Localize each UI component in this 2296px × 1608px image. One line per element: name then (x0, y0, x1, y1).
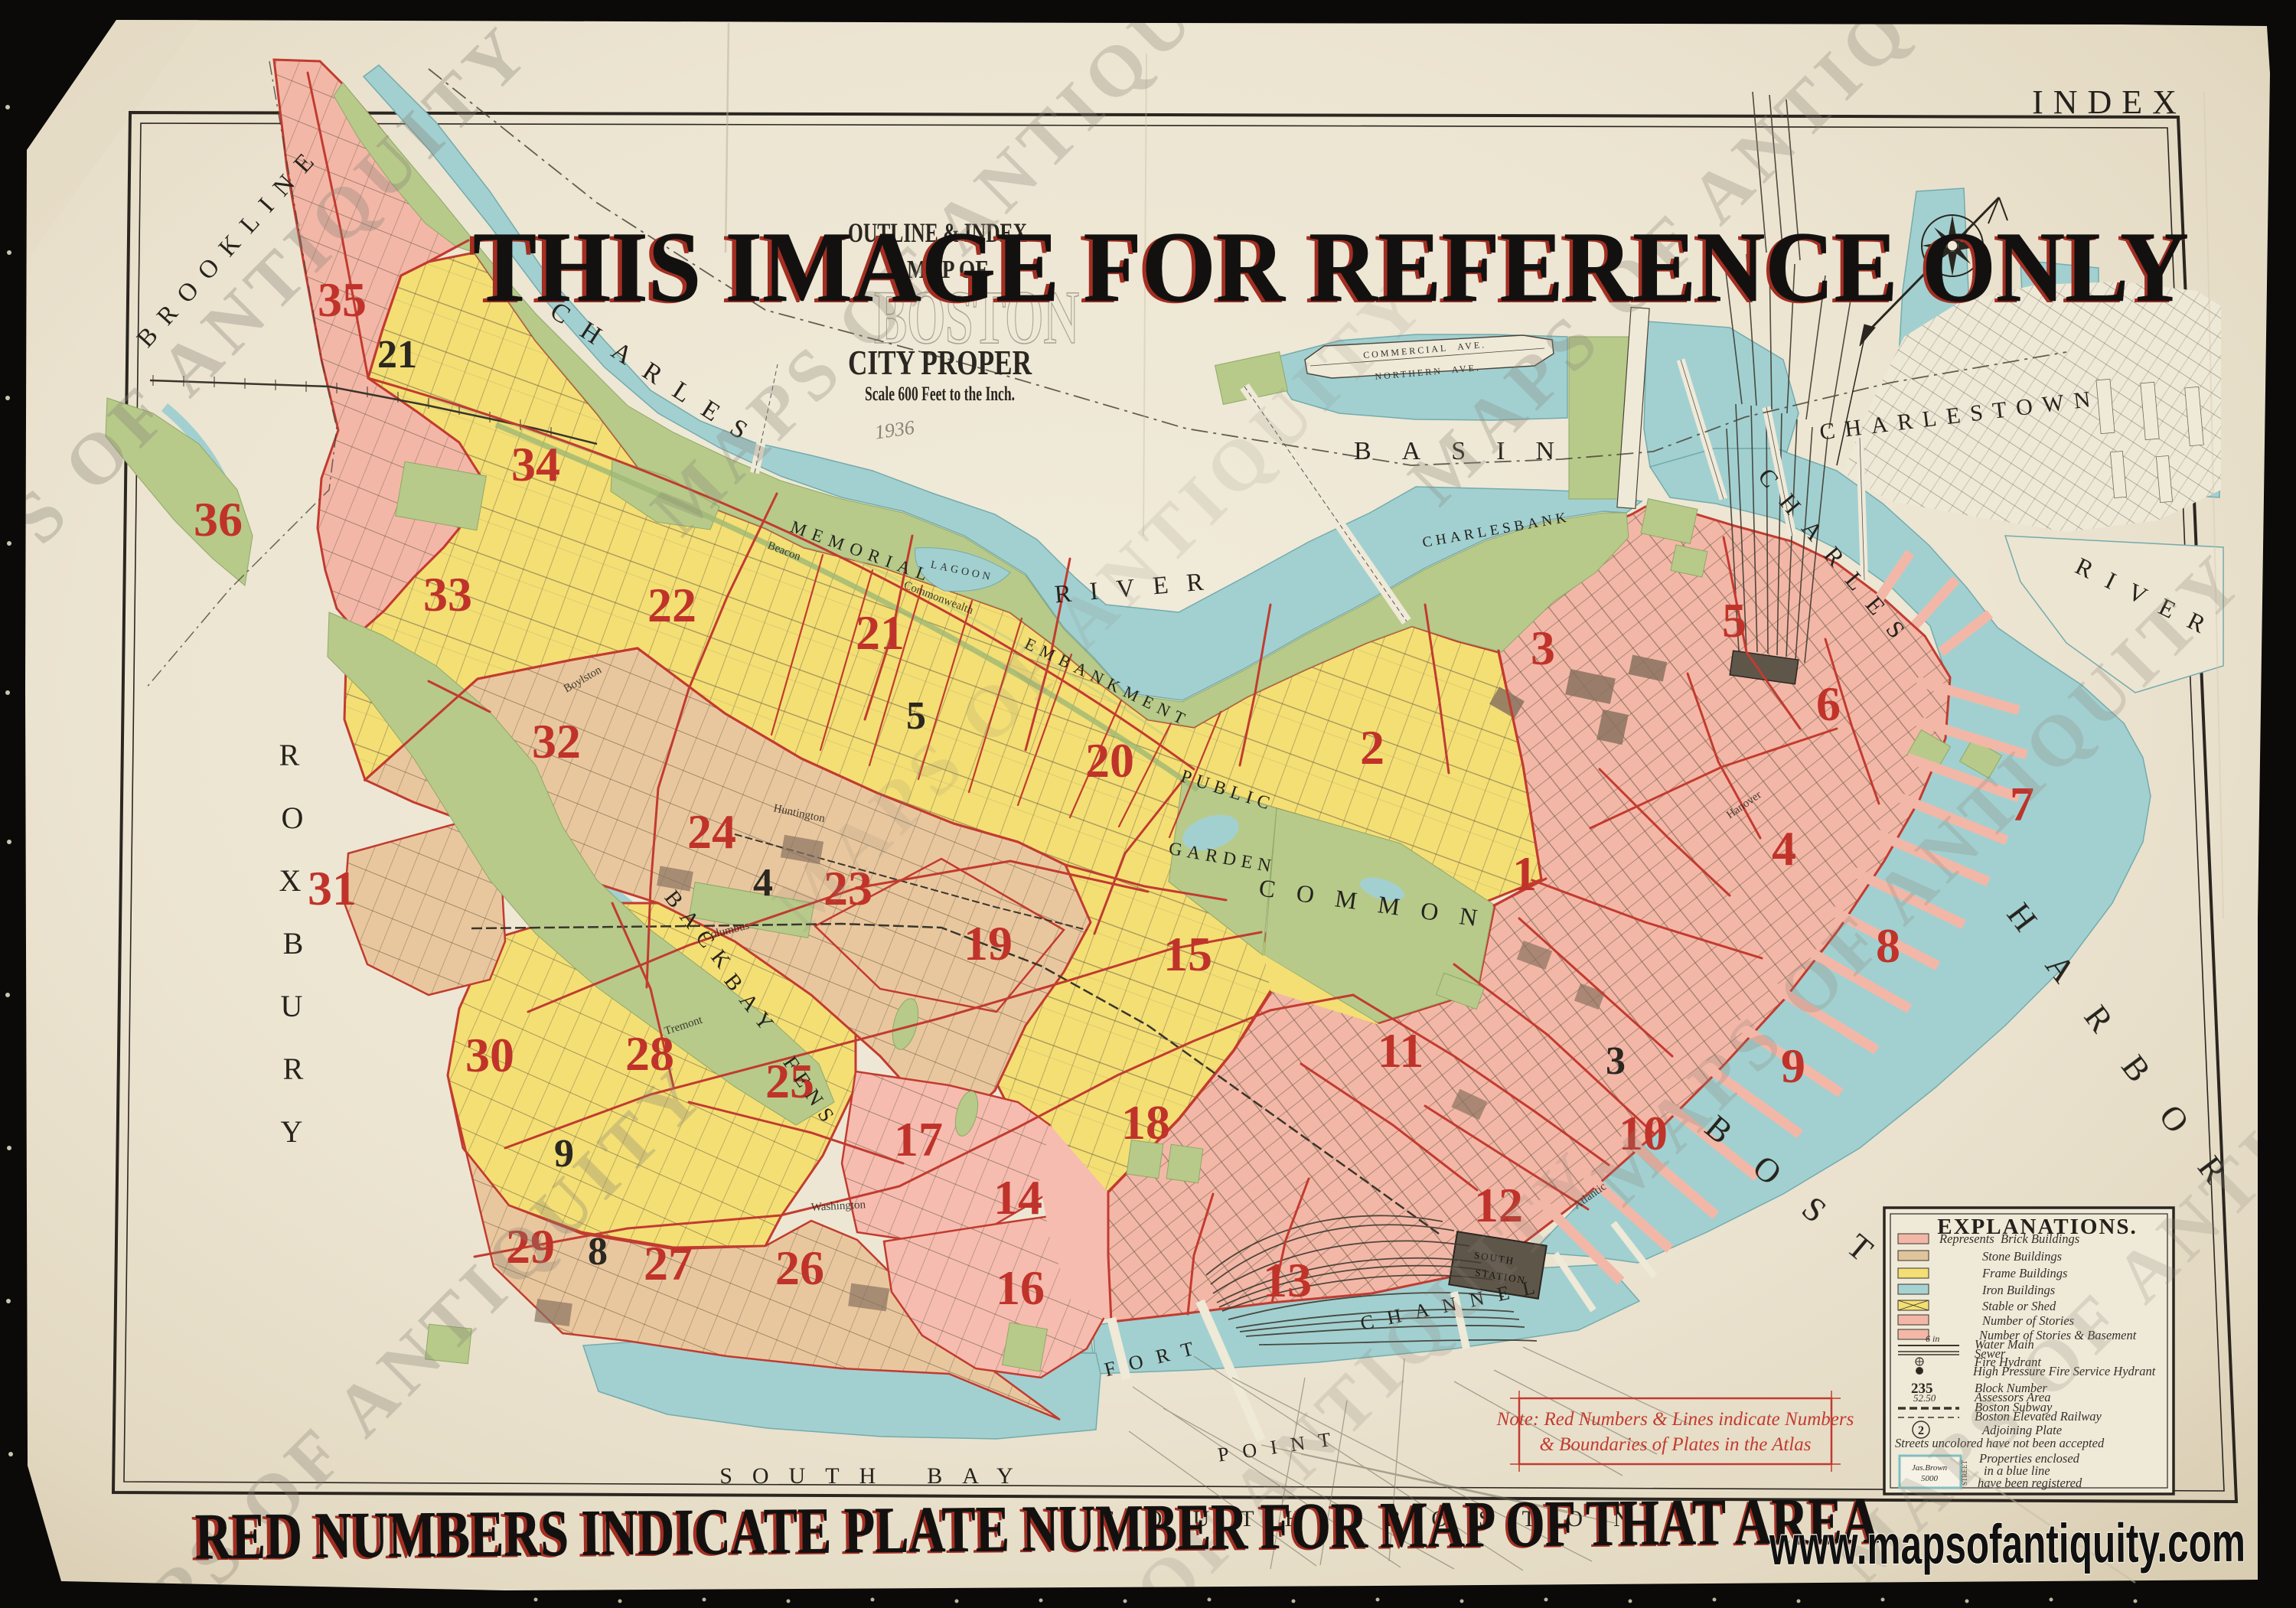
svg-text:17: 17 (894, 1112, 943, 1166)
svg-text:Frame Buildings: Frame Buildings (1981, 1266, 2067, 1280)
svg-text:2: 2 (1918, 1424, 1924, 1437)
svg-text:Scale 600 Feet to the Inch.: Scale 600 Feet to the Inch. (865, 383, 1015, 405)
svg-text:U: U (281, 989, 303, 1023)
svg-text:Stable or Shed: Stable or Shed (1982, 1299, 2056, 1313)
svg-text:30: 30 (465, 1028, 514, 1082)
svg-text:36: 36 (194, 492, 243, 546)
svg-text:19: 19 (964, 916, 1013, 970)
svg-text:33: 33 (423, 567, 472, 621)
svg-text:3: 3 (1531, 621, 1555, 675)
svg-text:4: 4 (1772, 821, 1796, 876)
svg-text:6 in: 6 in (1926, 1333, 1939, 1344)
svg-text:SOUTH BAY: SOUTH BAY (719, 1463, 1033, 1489)
svg-text:2: 2 (1360, 720, 1384, 775)
svg-text:52.50: 52.50 (1913, 1392, 1936, 1404)
svg-text:INDEX: INDEX (2032, 83, 2187, 121)
svg-text:www.mapsofantiquity.com: www.mapsofantiquity.com (1769, 1512, 2245, 1577)
svg-text:24: 24 (687, 804, 736, 859)
svg-text:11: 11 (1378, 1023, 1424, 1078)
svg-text:Represents Brick Buildings: Represents Brick Buildings (1939, 1231, 2079, 1246)
svg-text:B: B (283, 926, 304, 961)
svg-text:13: 13 (1263, 1253, 1312, 1307)
svg-text:15: 15 (1163, 927, 1212, 981)
svg-text:O: O (282, 801, 304, 835)
svg-text:Stone Buildings: Stone Buildings (1982, 1249, 2062, 1264)
svg-text:R: R (283, 1052, 304, 1086)
svg-text:3: 3 (1606, 1039, 1626, 1083)
svg-text:THIS IMAGE FOR REFERENCE ONLY: THIS IMAGE FOR REFERENCE ONLY (473, 210, 2189, 323)
svg-text:22: 22 (647, 578, 696, 632)
svg-text:34: 34 (511, 437, 560, 491)
svg-text:6: 6 (1816, 677, 1841, 731)
svg-text:21: 21 (856, 605, 905, 660)
svg-text:31: 31 (308, 861, 357, 915)
svg-text:14: 14 (993, 1170, 1042, 1225)
svg-text:& Boundaries of Plates in the: & Boundaries of Plates in the Atlas (1539, 1434, 1811, 1455)
svg-text:1: 1 (1512, 846, 1537, 901)
svg-text:5: 5 (1722, 593, 1746, 647)
svg-text:Y: Y (281, 1114, 303, 1149)
svg-text:X: X (279, 863, 302, 898)
svg-text:32: 32 (532, 714, 581, 768)
svg-text:27: 27 (644, 1236, 693, 1290)
svg-text:Note: Red Numbers & Lines indi: Note: Red Numbers & Lines indicate Numbe… (1496, 1409, 1854, 1430)
svg-text:20: 20 (1085, 733, 1134, 788)
svg-text:26: 26 (775, 1241, 824, 1295)
svg-text:21: 21 (377, 333, 417, 377)
svg-text:Iron Buildings: Iron Buildings (1981, 1283, 2055, 1297)
svg-text:16: 16 (996, 1261, 1045, 1315)
svg-text:18: 18 (1121, 1095, 1170, 1150)
svg-text:R: R (279, 738, 300, 772)
